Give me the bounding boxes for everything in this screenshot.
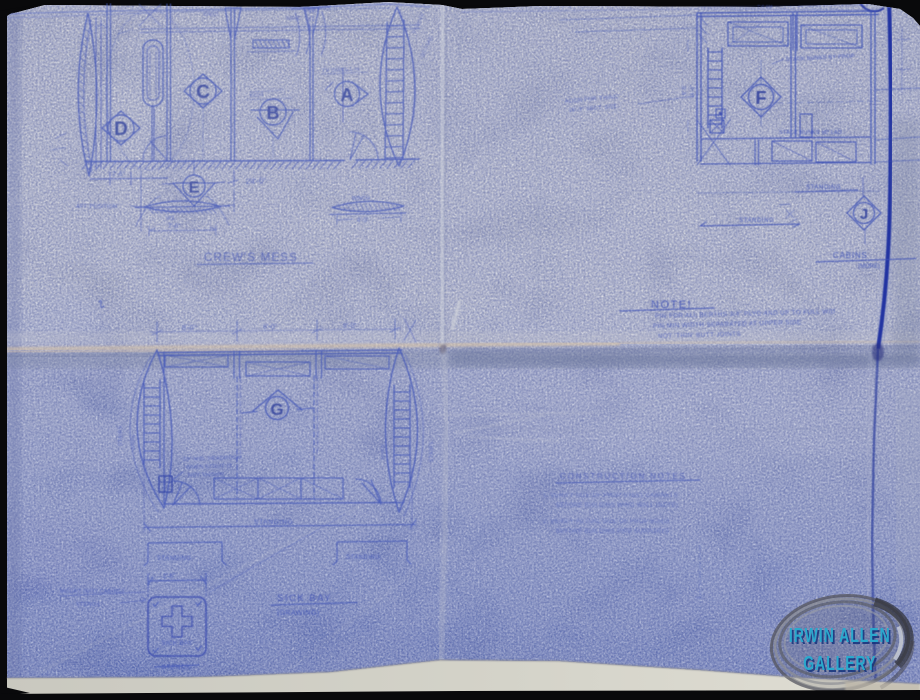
svg-text:(DRAWING): (DRAWING) <box>277 610 320 617</box>
svg-text:CREW'S MESS: CREW'S MESS <box>204 252 298 264</box>
svg-text:G: G <box>270 400 283 419</box>
svg-text:2'-6": 2'-6" <box>163 574 175 580</box>
svg-text:WINCH: WINCH <box>352 196 370 202</box>
svg-text:STANDING: STANDING <box>739 218 774 224</box>
svg-text:WARD: WARD <box>286 16 301 22</box>
svg-text:CONSTRUCTION NOTES: CONSTRUCTION NOTES <box>560 472 687 481</box>
svg-text:WHEN: WHEN <box>380 444 385 460</box>
svg-text:8'-0": 8'-0" <box>343 323 357 330</box>
svg-text:J: J <box>860 206 868 223</box>
svg-text:7'-5 SM: 7'-5 SM <box>757 4 773 9</box>
svg-text:STANDING: STANDING <box>806 185 841 191</box>
svg-text:E: E <box>189 180 200 197</box>
svg-text:STANDING: STANDING <box>346 555 381 561</box>
svg-text:SICK BAY: SICK BAY <box>161 640 192 647</box>
svg-text:BEFORE BUILDING WING WALL (NOT: BEFORE BUILDING WING WALL (NOTE) <box>556 503 678 509</box>
svg-text:8'-6": 8'-6" <box>682 85 688 95</box>
svg-text:BEFORE BUILDING PIPE SUPPORTS: BEFORE BUILDING PIPE SUPPORTS <box>556 529 669 535</box>
svg-text:BEDS: BEDS <box>250 93 264 99</box>
svg-text:D: D <box>114 119 128 140</box>
svg-text:F: F <box>756 88 767 108</box>
svg-text:VIZ.: VIZ. <box>166 216 177 222</box>
svg-text:2. VERIFY ACTUAL SIZE OF PROP: 2. VERIFY ACTUAL SIZE OF PROP BUILD <box>543 519 670 525</box>
svg-text:STANDING: STANDING <box>254 519 294 526</box>
svg-text:IRWIN ALLEN: IRWIN ALLEN <box>789 623 891 646</box>
svg-text:8'-0": 8'-0" <box>182 325 196 332</box>
svg-text:7'-6": 7'-6" <box>112 171 126 178</box>
svg-text:STENCIL: STENCIL <box>162 664 193 671</box>
svg-text:STAIRS: STAIRS <box>118 425 124 446</box>
svg-text:1. VERIFY SIZE OF PROP STEEL: 1. VERIFY SIZE OF PROP STEEL CABINETS <box>543 493 678 499</box>
svg-text:AFT. POSITION: AFT. POSITION <box>76 204 117 210</box>
svg-text:7'-6": 7'-6" <box>168 224 180 230</box>
svg-text:SICK BAY: SICK BAY <box>277 593 332 604</box>
svg-text:WARD: WARD <box>303 8 318 14</box>
svg-text:STENCIL: STENCIL <box>76 602 101 608</box>
svg-text:STACK BUNKS W/ LAD.: STACK BUNKS W/ LAD. <box>779 130 844 136</box>
svg-text:8'-0": 8'-0" <box>263 324 277 331</box>
svg-text:STANDING: STANDING <box>157 556 192 562</box>
svg-text:C: C <box>196 82 210 103</box>
svg-text:WHEN: WHEN <box>131 434 136 450</box>
svg-text:(MORE): (MORE) <box>858 264 880 270</box>
svg-text:CABINS: CABINS <box>833 251 868 260</box>
svg-text:GALLERY: GALLERY <box>803 651 876 674</box>
svg-text:A: A <box>341 85 354 105</box>
svg-text:24'-0": 24'-0" <box>246 176 267 186</box>
svg-text:4'-0": 4'-0" <box>357 218 369 224</box>
svg-text:B: B <box>267 103 280 123</box>
svg-text:STAIRS: STAIRS <box>429 441 435 462</box>
svg-text:WARD: WARD <box>203 12 218 18</box>
